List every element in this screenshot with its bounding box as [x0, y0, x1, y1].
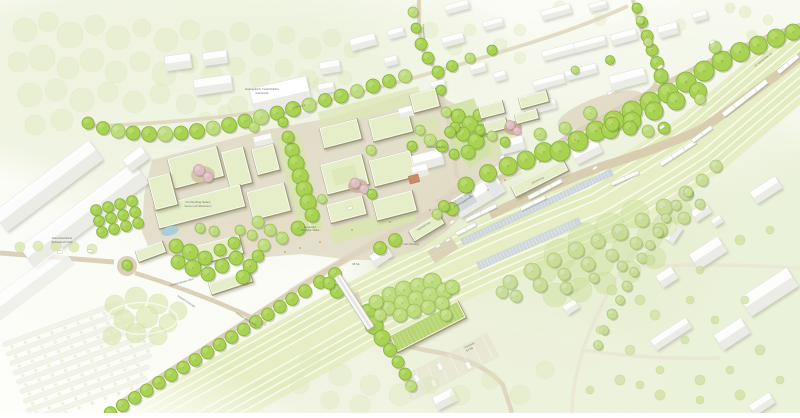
svg-text:Car-Sharing: Car-Sharing [403, 242, 419, 246]
svg-text:Gemeinde: Gemeinde [256, 91, 269, 95]
svg-text:98 Stp: 98 Stp [352, 262, 360, 266]
svg-text:Hotel Erweiterung: Hotel Erweiterung [426, 146, 446, 149]
svg-text:Marktplatz West: Marktplatz West [301, 228, 320, 232]
svg-text:Bohnenbrach Hadl: Bohnenbrach Hadl [52, 241, 73, 244]
svg-text:Fasselsbachkanal: Fasselsbachkanal [52, 237, 72, 240]
svg-text:Serve und Showroom: Serve und Showroom [185, 204, 213, 208]
